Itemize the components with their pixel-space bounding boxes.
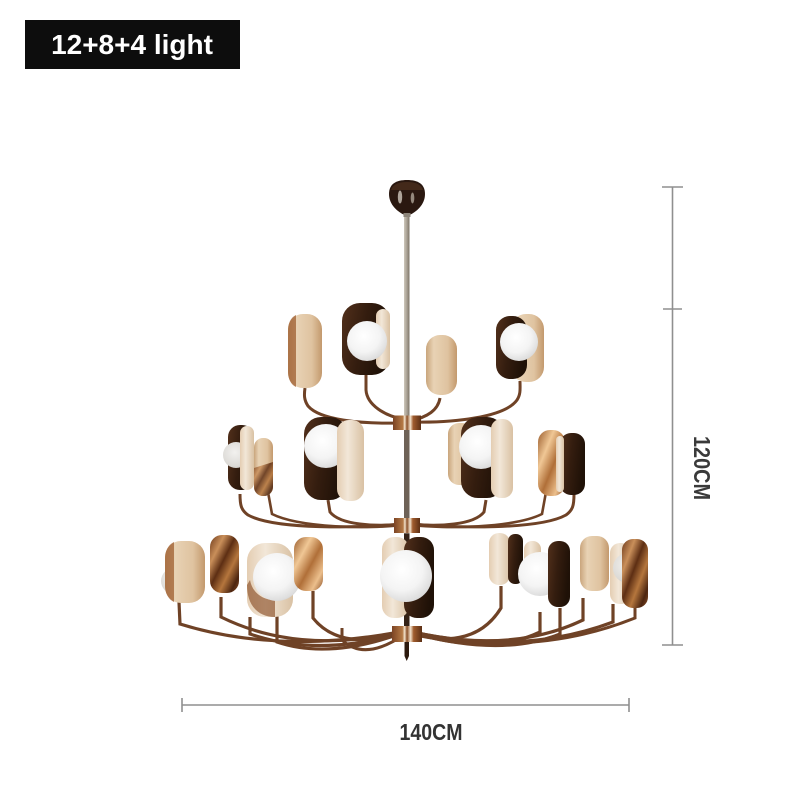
svg-text:120CM: 120CM [689,436,715,500]
svg-text:140CM: 140CM [400,719,463,745]
svg-text:12+8+4 light: 12+8+4 light [51,29,213,60]
